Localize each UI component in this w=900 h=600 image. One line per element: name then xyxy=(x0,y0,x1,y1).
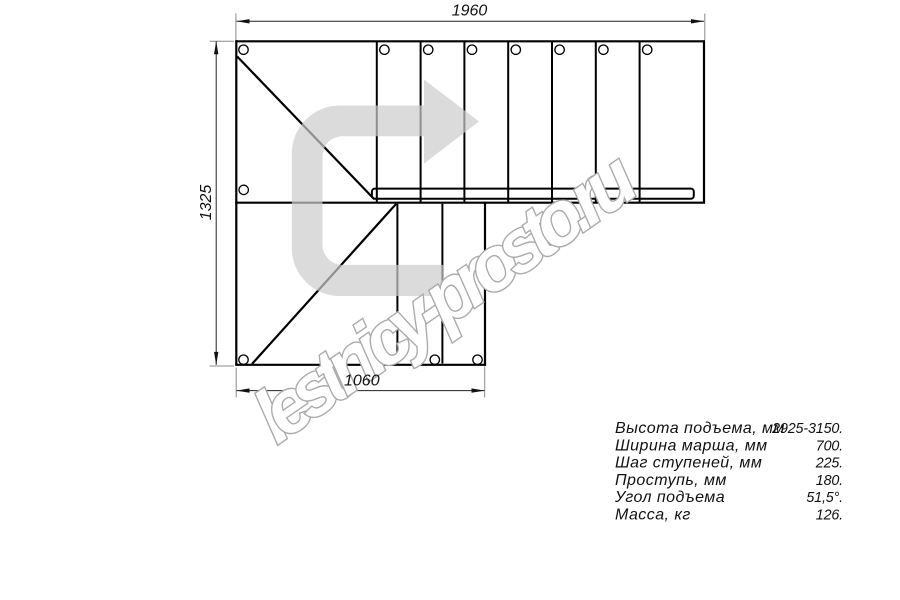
svg-text:1325: 1325 xyxy=(198,185,215,221)
svg-text:Угол подъема: Угол подъема xyxy=(614,489,725,506)
svg-text:126.: 126. xyxy=(816,508,843,524)
svg-text:Шаг ступеней, мм: Шаг ступеней, мм xyxy=(615,455,762,472)
svg-text:1960: 1960 xyxy=(452,3,488,20)
svg-text:Высота подъема, мм: Высота подъема, мм xyxy=(615,420,785,437)
svg-text:Масса, кг: Масса, кг xyxy=(615,507,691,524)
svg-text:Ширина марша, мм: Ширина марша, мм xyxy=(615,437,768,454)
svg-text:1060: 1060 xyxy=(344,373,380,390)
svg-text:700.: 700. xyxy=(816,438,843,454)
svg-text:51,5°.: 51,5°. xyxy=(806,490,843,506)
svg-text:2925-3150.: 2925-3150. xyxy=(771,421,843,437)
svg-text:180.: 180. xyxy=(816,473,843,489)
svg-text:225.: 225. xyxy=(815,456,843,472)
svg-text:Проступь, мм: Проступь, мм xyxy=(615,472,727,489)
